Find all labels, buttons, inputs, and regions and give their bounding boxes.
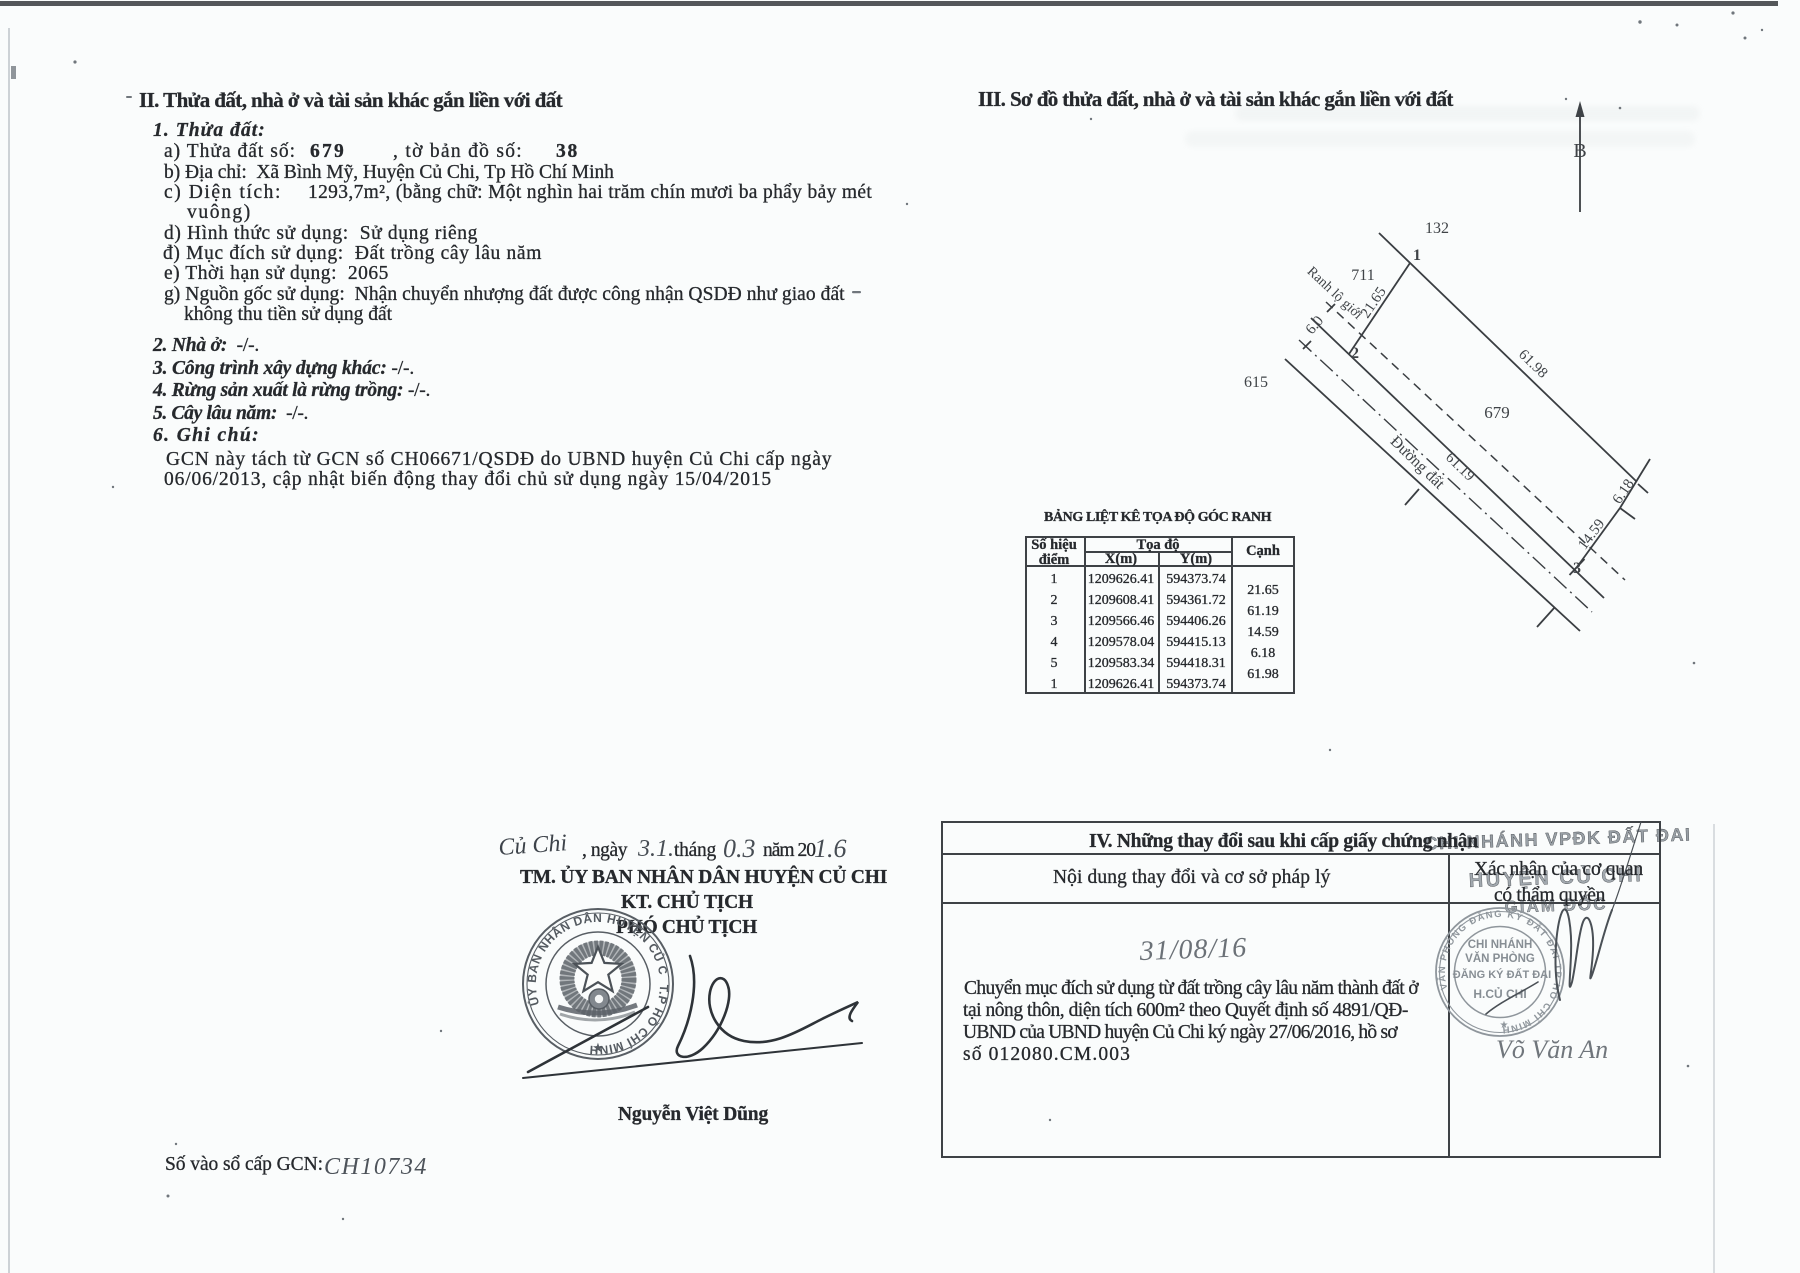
svg-text:VĂN PHÒNG: VĂN PHÒNG bbox=[1465, 952, 1535, 965]
svg-text:★: ★ bbox=[592, 1040, 604, 1055]
svg-text:Củ Chi: Củ Chi bbox=[498, 830, 568, 861]
svg-text:Võ Văn An: Võ Văn An bbox=[1496, 1035, 1608, 1064]
svg-text:61.98: 61.98 bbox=[1515, 347, 1550, 382]
svg-text:14.59: 14.59 bbox=[1575, 516, 1608, 553]
svg-text:3.1.: 3.1. bbox=[637, 836, 674, 862]
svg-text:0.3: 0.3 bbox=[723, 834, 756, 863]
svg-text:★: ★ bbox=[1500, 1020, 1509, 1031]
svg-text:31/08/16: 31/08/16 bbox=[1138, 932, 1248, 967]
svg-text:1: 1 bbox=[1413, 247, 1421, 264]
svg-text:CHI NHÁNH: CHI NHÁNH bbox=[1468, 938, 1533, 951]
svg-text:1.6: 1.6 bbox=[814, 834, 847, 863]
svg-text:711: 711 bbox=[1351, 267, 1374, 284]
svg-text:21.65: 21.65 bbox=[1358, 284, 1390, 321]
svg-text:615: 615 bbox=[1244, 374, 1268, 391]
svg-text:6.18: 6.18 bbox=[1610, 476, 1638, 507]
svg-text:2: 2 bbox=[1351, 345, 1359, 362]
svg-text:CH10734: CH10734 bbox=[324, 1154, 428, 1180]
svg-text:ĐĂNG KÝ ĐẤT ĐAI: ĐĂNG KÝ ĐẤT ĐAI bbox=[1453, 968, 1551, 981]
svg-text:3: 3 bbox=[1573, 560, 1581, 577]
svg-text:6.0: 6.0 bbox=[1303, 313, 1327, 338]
svg-text:B: B bbox=[1573, 140, 1586, 162]
svg-text:Đường đất: Đường đất bbox=[1387, 433, 1448, 493]
svg-text:679: 679 bbox=[1484, 403, 1510, 422]
svg-text:132: 132 bbox=[1425, 220, 1449, 237]
